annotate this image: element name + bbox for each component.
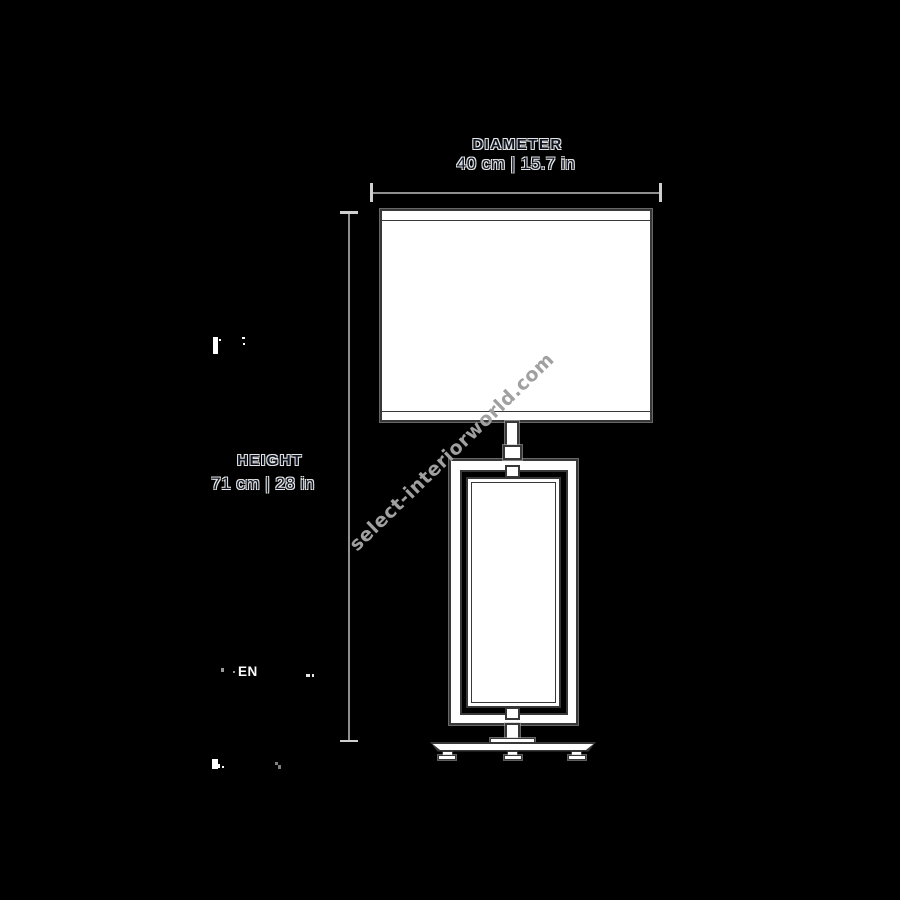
artifact-mark bbox=[213, 337, 218, 354]
diameter-label: DIAMETER bbox=[430, 137, 605, 152]
dimension-diagram-canvas: DIAMETER 40 cm | 15.7 in HEIGHT 71 cm | … bbox=[0, 0, 900, 900]
height-tick-top bbox=[340, 211, 358, 214]
lamp-body-panel bbox=[466, 477, 561, 708]
lamp-body-top-fitting bbox=[505, 465, 520, 478]
artifact-mark bbox=[242, 337, 245, 340]
artifact-mark bbox=[218, 764, 221, 768]
artifact-mark bbox=[233, 671, 235, 673]
artifact-mark bbox=[222, 766, 224, 768]
artifact-mark bbox=[278, 765, 281, 769]
artifact-mark bbox=[306, 674, 310, 677]
artifact-mark bbox=[312, 674, 315, 677]
lamp-stem-upper bbox=[505, 421, 519, 448]
lamp-foot-pad bbox=[438, 755, 456, 760]
lamp-foot-center bbox=[504, 751, 522, 761]
height-dimension-line bbox=[348, 212, 351, 741]
lamp-foot-pad bbox=[504, 755, 522, 760]
diameter-value: 40 cm | 15.7 in bbox=[430, 155, 602, 172]
lamp-shade-bottom-rim-line bbox=[382, 411, 650, 413]
artifact-text-en: EN bbox=[238, 665, 258, 679]
lamp-foot-left bbox=[438, 751, 456, 761]
height-value: 71 cm | 28 in bbox=[183, 475, 343, 492]
artifact-mark bbox=[219, 339, 221, 341]
diameter-dimension-line bbox=[371, 192, 660, 195]
height-tick-bottom bbox=[340, 740, 358, 743]
lamp-foot-right bbox=[568, 751, 586, 761]
artifact-mark bbox=[243, 343, 245, 345]
lamp-base bbox=[430, 742, 596, 752]
diameter-tick-left bbox=[370, 183, 373, 202]
lamp-base-fill bbox=[432, 744, 594, 751]
diameter-tick-right bbox=[659, 183, 662, 202]
lamp-body-bottom-fitting bbox=[505, 707, 520, 720]
artifact-mark bbox=[221, 668, 224, 672]
lamp-body-panel-inner-line bbox=[471, 482, 556, 703]
lamp-stem-collar bbox=[503, 445, 522, 460]
lamp-shade-top-rim-line bbox=[382, 220, 650, 222]
lamp-foot-pad bbox=[568, 755, 586, 760]
height-label: HEIGHT bbox=[195, 453, 345, 468]
